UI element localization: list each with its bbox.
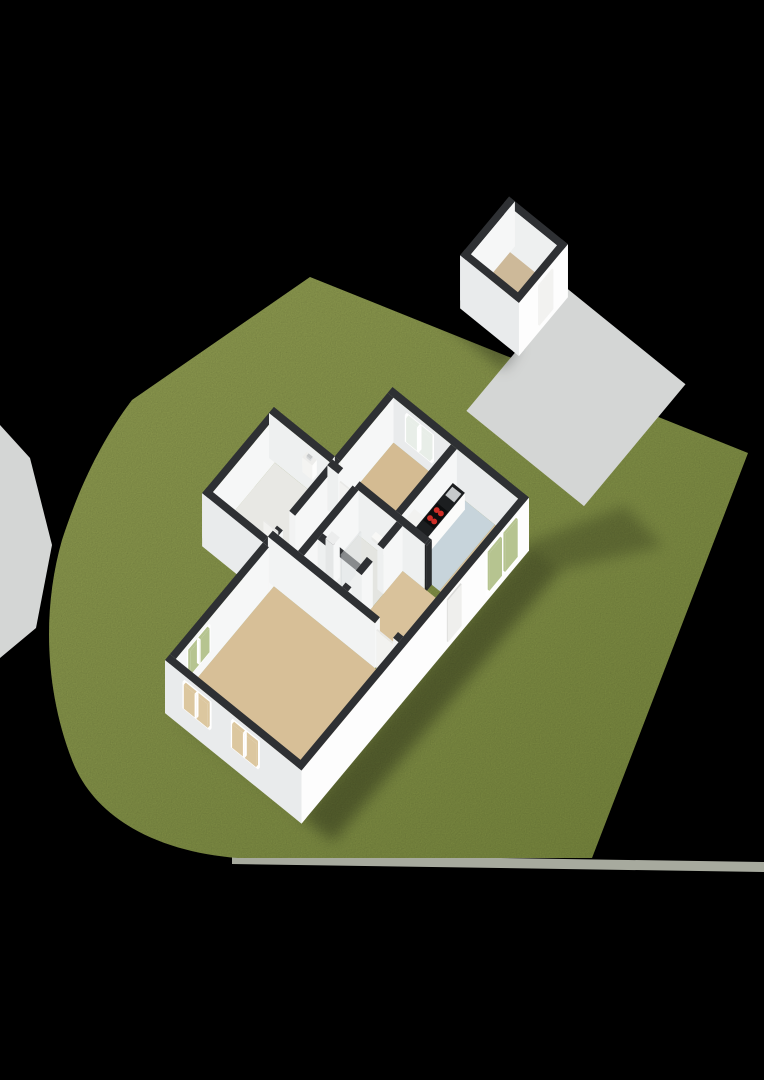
nw-window-mullion-side-f	[199, 639, 200, 664]
sw-window-2-glass-side-f	[256, 741, 258, 767]
bedroom-window-mullion-side-l	[417, 428, 419, 453]
sw-window-1-glass-side-f	[208, 702, 210, 728]
front-door-side-l	[447, 599, 448, 642]
kitchen-doorway-shadow-side-l	[425, 544, 427, 591]
floorplan-viewport	[0, 0, 764, 1080]
neighbor-pavement	[0, 425, 52, 658]
shed-se-wall-side-l	[513, 298, 519, 356]
sw-window-2-mullion-side-l	[243, 733, 245, 758]
kitchen-doorway-shadow-side-f	[427, 540, 432, 591]
bedroom-window-glass-side-f	[430, 435, 433, 462]
sw-window-1-frame-side-f	[210, 702, 212, 731]
shower-column-side-f	[334, 538, 340, 585]
screenshot-root: { "scene": { "label": "3D floor plan of …	[0, 0, 764, 1080]
sw-window-1-mullion-side-l	[195, 694, 197, 719]
shed-door-side-l	[538, 285, 539, 326]
french-door-glass-left-side-l	[488, 552, 490, 591]
bedroom-window-mullion-side-f	[419, 425, 422, 452]
floorplan-3d-scene	[0, 0, 764, 1080]
nw-window-mullion-side-l	[197, 639, 199, 665]
sw-window-2-mullion-side-f	[245, 732, 247, 758]
sw-window-2-frame-side-f	[258, 741, 260, 770]
se-wall-side-l	[296, 766, 302, 824]
french-door-frame-side-l	[485, 553, 486, 597]
sw-window-1-mullion-side-f	[196, 693, 198, 719]
french-door-glass-right-side-l	[503, 533, 505, 572]
bath-hall-wall-c-side-l	[377, 544, 383, 594]
